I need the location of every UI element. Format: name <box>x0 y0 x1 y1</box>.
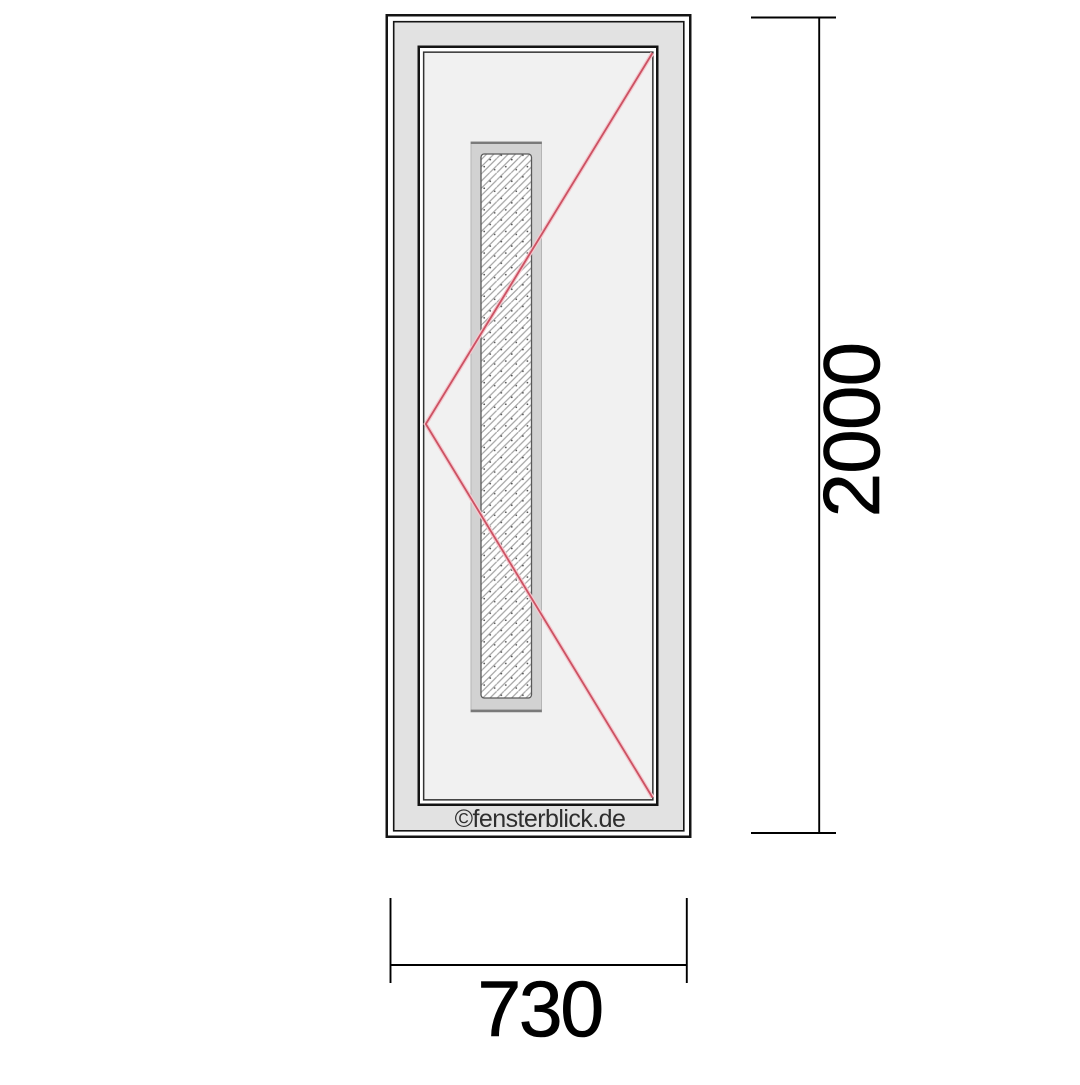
svg-text:©fensterblick.de: ©fensterblick.de <box>455 805 626 833</box>
svg-text:2000: 2000 <box>807 343 896 518</box>
svg-text:730: 730 <box>477 964 601 1053</box>
